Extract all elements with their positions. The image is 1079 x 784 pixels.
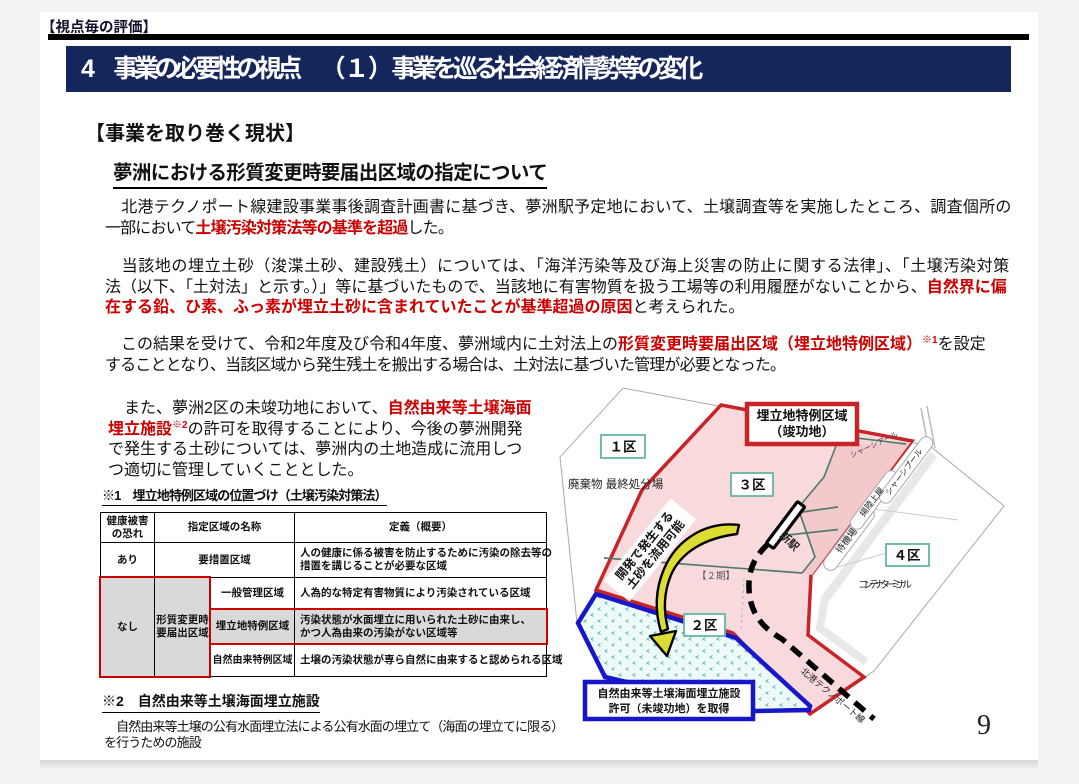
svg-text:許可（未竣功地）を取得: 許可（未竣功地）を取得 [609, 701, 730, 715]
svg-text:（竣功地）: （竣功地） [769, 424, 834, 439]
svg-text:コンテナターミナル: コンテナターミナル [858, 579, 912, 591]
svg-text:埋立地特例区域: 埋立地特例区域 [756, 408, 847, 423]
svg-text:１区: １区 [610, 440, 637, 455]
svg-text:２区: ２区 [691, 618, 718, 633]
svg-text:３区: ３区 [739, 478, 766, 493]
svg-text:【２期】: 【２期】 [697, 571, 735, 582]
svg-text:廃棄物 最終処分場: 廃棄物 最終処分場 [568, 477, 664, 491]
svg-text:４区: ４区 [894, 548, 921, 563]
svg-text:自然由来等土壌海面埋立施設: 自然由来等土壌海面埋立施設 [598, 686, 741, 700]
